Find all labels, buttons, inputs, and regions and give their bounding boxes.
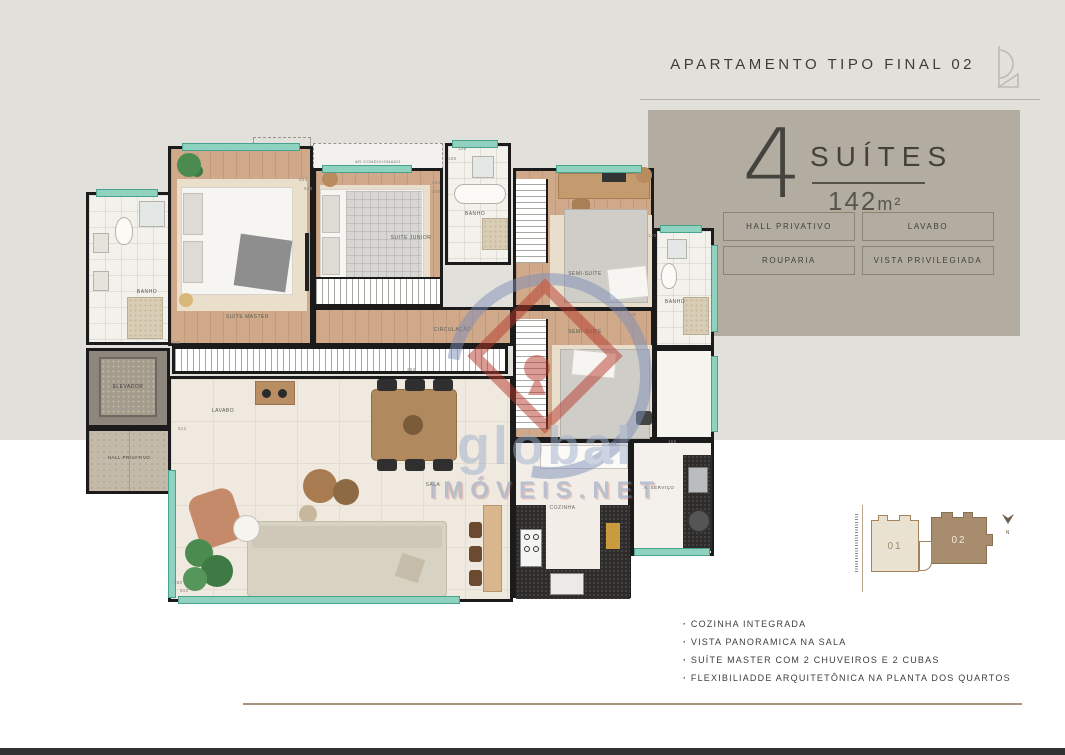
monitor (602, 173, 626, 182)
sofa-pillow (395, 553, 425, 583)
wardrobe (316, 277, 440, 304)
toilet (115, 217, 133, 245)
unit-02-bump (986, 534, 993, 546)
label-lavabo: LAVABO (200, 408, 246, 414)
label-cozinha: COZINHA (535, 505, 590, 511)
stove (520, 529, 542, 567)
label-circulacao: CIRCULAÇÃO (415, 327, 490, 333)
room-servico (631, 440, 714, 556)
north-label: N (999, 530, 1017, 536)
plant (183, 567, 207, 591)
north-arrow: N (999, 512, 1017, 536)
room-banho-top (445, 143, 511, 265)
dining-chair (433, 459, 453, 471)
washer (687, 509, 711, 533)
vanity (482, 218, 508, 250)
lamp (179, 293, 193, 307)
kitchen-sink (550, 573, 584, 595)
ac-ledge-label: AR CONDICIONADO (330, 159, 426, 164)
burner (533, 534, 539, 540)
sofa (247, 521, 447, 597)
sink (93, 233, 109, 253)
bottom-dark-bar (0, 748, 1065, 755)
coffee-table (333, 479, 359, 505)
stool (322, 171, 338, 187)
window (178, 596, 460, 604)
title-divider (640, 99, 1040, 100)
pillow (571, 349, 617, 379)
label-suite-junior: SUITE JUNIOR (380, 235, 442, 241)
coffee-table (303, 469, 337, 503)
label-semi-suite-2: SEMI-SUÍTE (545, 329, 625, 335)
centerpiece (403, 415, 423, 435)
label-elevador: ELEVADOR (96, 384, 160, 390)
window (634, 548, 710, 556)
sofa-back-cushions (252, 526, 442, 548)
flyer-page: APARTAMENTO TIPO FINAL 02 4 SUÍTES 142m²… (0, 0, 1065, 755)
feature-item: FLEXIBILIADDE ARQUITETÔNICA NA PLANTA DO… (683, 669, 1043, 687)
shower (139, 201, 165, 227)
room-semi-suite-2 (513, 308, 654, 440)
feature-item: COZINHA INTEGRADA (683, 615, 1043, 633)
dining-chair (405, 459, 425, 471)
unit-01-bump (899, 515, 911, 521)
counter (540, 445, 628, 469)
service-sink (688, 467, 708, 493)
suites-underline (812, 182, 925, 184)
room-banho-right (654, 228, 714, 348)
toilet (661, 263, 677, 289)
street-label-ticks (855, 514, 858, 574)
dining-chair (433, 379, 453, 391)
label-servico: A. SERVIÇO (634, 485, 684, 490)
room-hall-privativo (86, 428, 172, 494)
island (483, 505, 502, 592)
dining-chair (377, 379, 397, 391)
shower (472, 156, 494, 178)
terrace (654, 348, 714, 440)
shelf (606, 523, 620, 549)
key-plan-unit-02: 02 (931, 517, 987, 564)
window (660, 225, 702, 233)
badge-hall-privativo: HALL PRIVATIVO (723, 212, 855, 241)
features-list: COZINHA INTEGRADA VISTA PANORAMICA NA SA… (683, 615, 1043, 687)
label-banho-right: BANHO (654, 299, 696, 305)
vanity (127, 297, 163, 339)
window (168, 470, 176, 598)
window (711, 356, 718, 432)
window (96, 189, 158, 197)
throw-blanket (234, 234, 293, 293)
stool (469, 546, 482, 562)
room-semi-suite-1 (513, 168, 654, 308)
north-arrow-icon (1001, 513, 1015, 525)
window (452, 140, 498, 148)
stool (469, 522, 482, 538)
key-plan-unit-01: 01 (871, 520, 919, 572)
key-plan-notch (919, 541, 932, 571)
bathtub (454, 184, 506, 204)
plant (177, 153, 201, 177)
label-suite-master: SUITE MASTER (200, 314, 295, 320)
window (556, 165, 642, 173)
label-sala: SALA (410, 482, 456, 488)
room-cozinha (513, 440, 631, 598)
label-banho-top: BANHO (450, 211, 500, 217)
dining-chair (405, 379, 425, 391)
shower (667, 239, 687, 259)
area-unit: m² (877, 194, 902, 214)
chair (636, 411, 652, 425)
pillow (322, 195, 340, 233)
window (711, 245, 718, 332)
stool (469, 570, 482, 586)
cooktop-burner (262, 389, 271, 398)
unit-02-bump (963, 512, 973, 518)
label-semi-suite-1: SEMI-SUÍTE (545, 271, 625, 277)
window (322, 165, 412, 173)
window (182, 143, 300, 151)
badge-lavabo: LAVABO (862, 212, 994, 241)
side-table (233, 515, 260, 542)
label-banho-master: BANHO (120, 289, 174, 295)
dining-chair (377, 459, 397, 471)
suites-count: 4 (742, 118, 802, 213)
coffee-bar (255, 381, 295, 405)
unit-02-bump (941, 512, 953, 518)
unit-01-bump (878, 515, 888, 521)
page-title: APARTAMENTO TIPO FINAL 02 (560, 56, 975, 73)
room-banho-master (86, 192, 172, 345)
sink (93, 271, 109, 291)
badge-vista-privilegiada: VISTA PRIVILEGIADA (862, 246, 994, 275)
suites-label: SUÍTES (810, 141, 953, 173)
pillow (183, 241, 203, 283)
wardrobe (516, 319, 548, 429)
key-plan-street-line (862, 505, 863, 592)
cooktop-burner (278, 389, 287, 398)
closet-rouparia (172, 346, 508, 374)
burner (524, 534, 530, 540)
burner (524, 546, 530, 552)
label-hall-privativo: HALL PRIVATIVO (90, 455, 168, 460)
feature-item: SUÍTE MASTER COM 2 CHUVEIROS E 2 CUBAS (683, 651, 1043, 669)
feature-item: VISTA PANORAMICA NA SALA (683, 633, 1043, 651)
kitchen-counter-right (600, 505, 630, 599)
brand-logo-icon (988, 40, 1022, 92)
footer-divider (243, 703, 1022, 705)
badge-rouparia: ROUPARIA (723, 246, 855, 275)
pillow (183, 193, 203, 235)
tv (305, 233, 309, 291)
pillow (322, 237, 340, 275)
wardrobe (516, 179, 548, 263)
burner (533, 546, 539, 552)
